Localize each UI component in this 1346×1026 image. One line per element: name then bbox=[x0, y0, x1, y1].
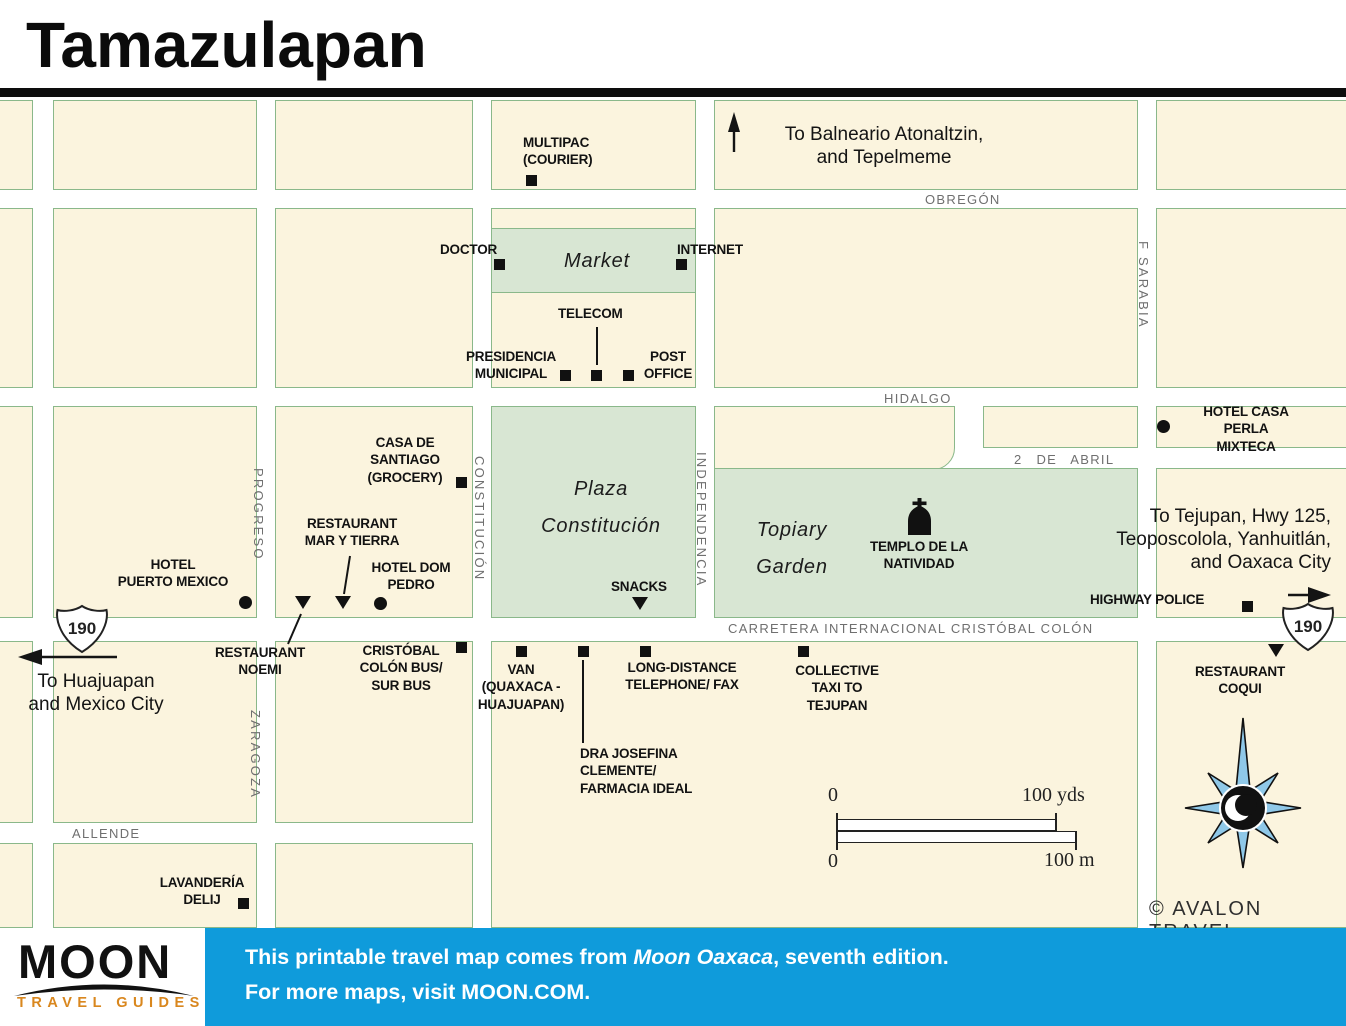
city-block bbox=[0, 100, 33, 190]
poi-label-hotel-dom-pedro: HOTEL DOM PEDRO bbox=[372, 559, 451, 594]
poi-marker-van-square bbox=[516, 646, 527, 657]
highway-190-shield-east: 190 bbox=[1280, 602, 1336, 652]
poi-label-cristobal-colon-bus: CRISTÓBAL COLÓN BUS/ SUR BUS bbox=[360, 642, 443, 694]
footer-banner: This printable travel map comes from Moo… bbox=[205, 928, 1346, 1026]
poi-label-snacks: SNACKS bbox=[611, 578, 667, 595]
poi-label-templo-natividad: TEMPLO DE LA NATIVIDAD bbox=[870, 538, 968, 573]
city-block bbox=[491, 100, 696, 190]
poi-marker-lavanderia-square bbox=[238, 898, 249, 909]
city-block bbox=[275, 100, 473, 190]
city-block bbox=[53, 208, 257, 388]
scale-tick-m-right bbox=[1075, 831, 1077, 850]
poi-label-highway-police: HIGHWAY POLICE bbox=[1090, 591, 1204, 608]
poi-marker-noemi-triangle bbox=[295, 596, 311, 609]
map-page: Tamazulapan OBREGÓN HIDALGO 2 DE ABRIL C… bbox=[0, 0, 1346, 1026]
scale-tick-left bbox=[836, 813, 838, 850]
poi-label-doctor: DOCTOR bbox=[440, 241, 497, 258]
destination-north: To Balneario Atonaltzin, and Tepelmeme bbox=[785, 123, 984, 169]
city-block bbox=[0, 641, 33, 823]
poi-marker-snacks-triangle bbox=[632, 597, 648, 610]
poi-label-restaurant-coqui: RESTAURANT COQUI bbox=[1195, 663, 1285, 698]
poi-label-post-office: POST OFFICE bbox=[644, 348, 692, 383]
poi-marker-puerto-mexico-dot bbox=[239, 596, 252, 609]
city-block bbox=[0, 406, 33, 618]
poi-marker-cristobal-square bbox=[456, 642, 467, 653]
poi-marker-dom-pedro-dot bbox=[374, 597, 387, 610]
poi-label-hotel-casa-perla: HOTEL CASA PERLA MIXTECA bbox=[1196, 403, 1296, 455]
poi-marker-highway-police-square bbox=[1242, 601, 1253, 612]
scale-100-m: 100 m bbox=[1044, 849, 1095, 872]
street-label-progreso: PROGRESO bbox=[251, 468, 266, 561]
poi-marker-mar-y-tierra-triangle bbox=[335, 596, 351, 609]
scale-tick-yds-right bbox=[1055, 813, 1057, 831]
city-block bbox=[275, 843, 473, 928]
street-label-f-sarabia: F SARABIA bbox=[1136, 241, 1151, 329]
poi-label-presidencia-municipal: PRESIDENCIA MUNICIPAL bbox=[466, 348, 556, 383]
street-label-hidalgo: HIDALGO bbox=[884, 391, 952, 406]
poi-label-collective-taxi: COLLECTIVE TAXI TO TEJUPAN bbox=[795, 662, 879, 714]
poi-marker-collective-square bbox=[798, 646, 809, 657]
street-label-2-de-abril: 2 DE ABRIL bbox=[1014, 452, 1114, 467]
poi-label-dra-josefina: DRA JOSEFINA CLEMENTE/ FARMACIA IDEAL bbox=[580, 745, 692, 797]
travel-guides-tagline: TRAVEL GUIDES bbox=[17, 995, 205, 1011]
poi-label-van: VAN (QUAXACA - HUAJUAPAN) bbox=[478, 661, 564, 713]
street-label-zaragoza: ZARAGOZA bbox=[248, 710, 263, 799]
area-label-plaza-constitucion: Plaza Constitución bbox=[541, 471, 661, 545]
moon-logo: MOON bbox=[18, 938, 172, 985]
poi-marker-casa-santiago-square bbox=[456, 477, 467, 488]
poi-label-multipac: MULTIPAC (COURIER) bbox=[523, 134, 592, 169]
scale-bar-meters bbox=[837, 831, 1076, 843]
street-label-obregon: OBREGÓN bbox=[925, 192, 1001, 207]
poi-marker-post-office-square bbox=[623, 370, 634, 381]
city-block bbox=[1156, 100, 1346, 190]
noemi-callout-line bbox=[288, 614, 301, 644]
poi-label-casa-de-santiago: CASA DE SANTIAGO (GROCERY) bbox=[368, 434, 443, 486]
footer-line1-book-title: Moon Oaxaca bbox=[633, 945, 773, 969]
page-title: Tamazulapan bbox=[26, 10, 427, 80]
city-block bbox=[0, 843, 33, 928]
scale-bar-yards bbox=[837, 819, 1056, 831]
poi-marker-dra-josefina-square bbox=[578, 646, 589, 657]
poi-label-restaurant-mar-y-tierra: RESTAURANT MAR Y TIERRA bbox=[305, 515, 400, 550]
svg-text:190: 190 bbox=[1294, 617, 1322, 636]
city-block bbox=[0, 208, 33, 388]
footer-line1: This printable travel map comes from Moo… bbox=[245, 945, 949, 970]
scale-zero-yds: 0 bbox=[828, 784, 838, 807]
street-label-independencia: INDEPENDENCIA bbox=[694, 452, 709, 588]
city-block bbox=[1156, 208, 1346, 388]
poi-marker-multipac-square bbox=[526, 175, 537, 186]
poi-label-restaurant-noemi: RESTAURANT NOEMI bbox=[215, 644, 305, 679]
poi-marker-long-distance-square bbox=[640, 646, 651, 657]
street-label-constitucion: CONSTITUCIÓN bbox=[472, 456, 487, 581]
street-label-allende: ALLENDE bbox=[72, 826, 140, 841]
area-label-market: Market bbox=[564, 249, 630, 273]
city-block bbox=[53, 100, 257, 190]
area-label-topiary-garden: Topiary Garden bbox=[756, 512, 828, 586]
scale-zero-m: 0 bbox=[828, 850, 838, 873]
poi-label-internet: INTERNET bbox=[677, 241, 743, 258]
destination-east: To Tejupan, Hwy 125, Teoposcolola, Yanhu… bbox=[1116, 505, 1331, 575]
poi-label-telecom: TELECOM bbox=[558, 305, 623, 322]
city-block bbox=[983, 406, 1138, 448]
poi-marker-doctor-square bbox=[494, 259, 505, 270]
poi-marker-internet-square bbox=[676, 259, 687, 270]
street-label-carretera: CARRETERA INTERNACIONAL CRISTÓBAL COLÓN bbox=[728, 621, 1093, 636]
destination-west: To Huajuapan and Mexico City bbox=[28, 670, 163, 716]
footer-line2: For more maps, visit MOON.COM. bbox=[245, 980, 590, 1005]
footer-line1-prefix: This printable travel map comes from bbox=[245, 945, 633, 969]
footer-line1-suffix: , seventh edition. bbox=[773, 945, 949, 969]
city-block bbox=[275, 208, 473, 388]
city-block bbox=[714, 208, 1138, 388]
title-rule bbox=[0, 88, 1346, 97]
poi-marker-telecom-square bbox=[591, 370, 602, 381]
svg-text:190: 190 bbox=[68, 619, 96, 638]
city-block bbox=[714, 406, 955, 470]
poi-label-lavanderia-delij: LAVANDERÍA DELIJ bbox=[160, 874, 245, 909]
poi-label-hotel-puerto-mexico: HOTEL PUERTO MEXICO bbox=[118, 556, 228, 591]
highway-190-shield-west: 190 bbox=[54, 604, 110, 654]
poi-marker-casa-perla-dot bbox=[1157, 420, 1170, 433]
poi-marker-presidencia-square bbox=[560, 370, 571, 381]
scale-100-yds: 100 yds bbox=[1022, 784, 1085, 807]
poi-label-long-distance-telephone: LONG-DISTANCE TELEPHONE/ FAX bbox=[625, 659, 738, 694]
